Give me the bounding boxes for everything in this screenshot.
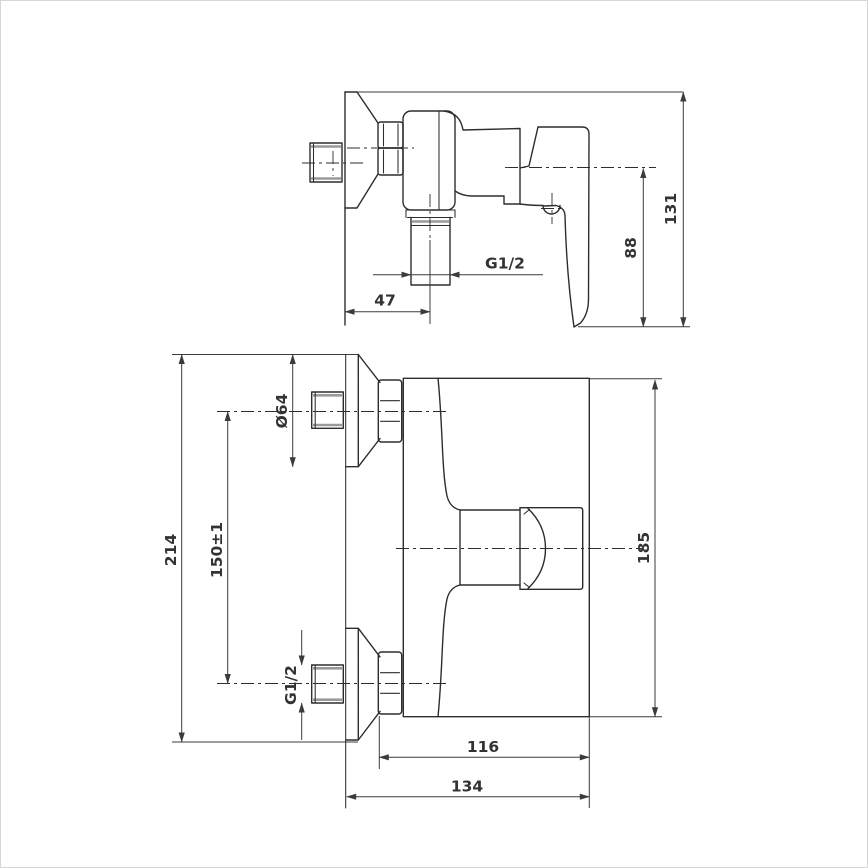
- handle-lever: [538, 127, 589, 327]
- dim-131: 131: [662, 92, 683, 327]
- dim-150-label: 150±1: [208, 522, 226, 578]
- shower-mixer-dimension-drawing: G1/2 47 88 131: [0, 0, 868, 868]
- dim-134-label: 134: [451, 778, 484, 796]
- body-face-curve-lower: [438, 585, 460, 717]
- dim-g12-front: G1/2: [282, 630, 302, 740]
- dim-214-label: 214: [162, 534, 180, 567]
- dim-116: 116: [379, 738, 589, 757]
- side-view: G1/2 47 88 131: [302, 92, 690, 327]
- dim-g12-front-label: G1/2: [282, 665, 300, 705]
- handle-base-line: [520, 204, 543, 206]
- pivot-dome: [543, 206, 560, 215]
- dim-131-label: 131: [662, 193, 680, 225]
- dim-214: 214: [162, 355, 182, 743]
- hex-nut-lower: [378, 148, 403, 175]
- body-extension-lines: [589, 379, 662, 808]
- handle-cap-edge: [520, 127, 538, 168]
- handle-boss: [460, 510, 520, 585]
- valve-body: [403, 111, 455, 210]
- nipple-top: [312, 392, 344, 428]
- outlet-flange: [406, 210, 455, 218]
- technical-drawing-page: G1/2 47 88 131: [0, 0, 868, 868]
- cartridge-housing-bottom: [455, 191, 520, 204]
- dim-116-label: 116: [467, 738, 499, 756]
- dim-185-label: 185: [635, 532, 653, 564]
- dim-47-label: 47: [374, 292, 396, 310]
- dim-47: 47: [345, 292, 430, 312]
- escutcheon-top: [346, 355, 380, 467]
- front-view: 214 150±1 Ø64: [162, 355, 662, 809]
- hex-nut-top-facets: [381, 401, 400, 422]
- dim-d64-label: Ø64: [273, 393, 291, 428]
- hex-nut-bottom-facets: [381, 673, 400, 694]
- nipple-bottom: [312, 665, 344, 703]
- dim-88: 88: [622, 169, 643, 327]
- dim-185: 185: [635, 380, 655, 717]
- escutcheon-bottom: [346, 628, 380, 740]
- hex-nut-upper: [378, 122, 403, 148]
- dim-134: 134: [347, 778, 590, 797]
- dim-g12-side: G1/2: [373, 255, 543, 275]
- supply-nipple: [310, 143, 342, 182]
- body-face-curve-upper: [438, 378, 460, 510]
- nipple-top-thread: [313, 395, 342, 425]
- dim-88-label: 88: [622, 237, 640, 259]
- nipple-thread: [311, 147, 341, 179]
- escutcheon: [345, 92, 378, 208]
- dim-150: 150±1: [208, 412, 228, 684]
- hex-nut-bottom: [378, 652, 401, 714]
- nipple-bottom-thread: [313, 668, 342, 699]
- pivot-center-mark: [541, 193, 564, 224]
- hex-nut-top: [378, 380, 401, 442]
- dim-g12-label: G1/2: [485, 255, 525, 273]
- body-outline: [403, 378, 589, 716]
- dim-d64: Ø64: [273, 355, 293, 467]
